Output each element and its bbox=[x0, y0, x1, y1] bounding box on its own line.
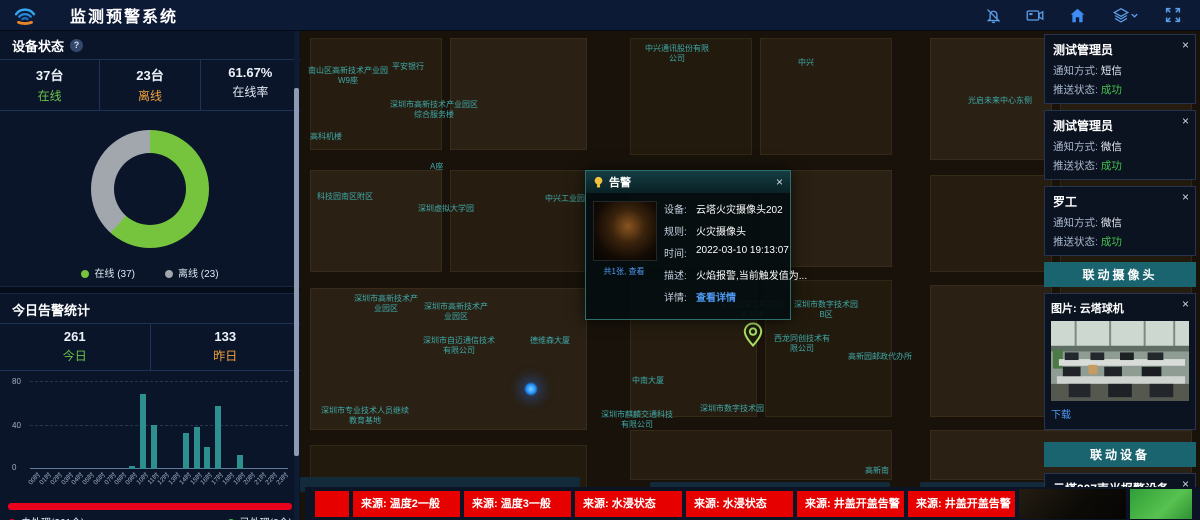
camera-snapshot-image[interactable] bbox=[1051, 321, 1189, 401]
info-icon[interactable]: ? bbox=[70, 39, 83, 52]
close-icon[interactable]: × bbox=[1182, 115, 1189, 127]
alarm-device-row: 设备:云塔火灾摄像头202 bbox=[664, 201, 807, 216]
alert-chip[interactable]: 来源: 井盖开盖告警 bbox=[797, 491, 904, 517]
bar bbox=[213, 406, 224, 469]
map-place-label: A座 bbox=[430, 162, 443, 172]
alert-chip[interactable]: 来源: 温度2一般 bbox=[353, 491, 460, 517]
bar bbox=[181, 433, 192, 469]
device-location-dot[interactable] bbox=[524, 382, 538, 396]
bar bbox=[148, 425, 159, 469]
map-place-label: 高新园邮政代办所 bbox=[848, 352, 912, 362]
processed-legend: 已处理(0个) bbox=[227, 514, 292, 520]
alert-chip[interactable]: 来源: 水浸状态 bbox=[686, 491, 793, 517]
home-icon[interactable] bbox=[1068, 6, 1086, 24]
legend-online: 在线 (37) bbox=[81, 265, 135, 280]
map-place-label: 中兴工业园 bbox=[545, 194, 585, 204]
map-place-label: 中兴 bbox=[798, 58, 814, 68]
bar bbox=[191, 427, 202, 469]
map-place-label: 深圳市麒麟交通科技有限公司 bbox=[598, 410, 676, 431]
camera-snapshot-card: × 图片: 云塔球机 bbox=[1044, 293, 1196, 430]
map-place-label: 中南大厦 bbox=[632, 376, 664, 386]
bar bbox=[138, 394, 149, 469]
alarm-popup-body: 共1张, 查看 设备:云塔火灾摄像头202 规则:火灾摄像头 时间:2022-0… bbox=[586, 193, 790, 319]
alarm-popup-title: 告警 bbox=[609, 174, 776, 190]
linked-devices-header: 联动设备 bbox=[1044, 442, 1196, 467]
donut-legend: 在线 (37) 离线 (23) bbox=[0, 263, 300, 286]
linked-cameras-header: 联动摄像头 bbox=[1044, 262, 1196, 287]
map-place-label: 西龙同创技术有限公司 bbox=[772, 334, 832, 355]
alarm-popup-header: 告警 × bbox=[586, 171, 790, 193]
notification-card: × 测试管理员 通知方式: 微信 推送状态: 成功 bbox=[1044, 110, 1196, 180]
alarm-rule-row: 规则:火灾摄像头 bbox=[664, 223, 807, 238]
alert-chip-partial[interactable] bbox=[315, 491, 349, 517]
map-place-label: 深圳市自迈通信技术有限公司 bbox=[420, 336, 498, 357]
today-alarms-table: 261 今日 133 昨日 bbox=[0, 323, 300, 371]
device-status-donut-wrap bbox=[0, 115, 300, 263]
close-icon[interactable]: × bbox=[776, 176, 783, 188]
map-place-label: 科技园南区附区 bbox=[305, 192, 385, 202]
header-actions bbox=[984, 6, 1182, 24]
map-place-label: 深圳虚拟大学园 bbox=[418, 204, 474, 214]
map-place-label: 高新南 bbox=[865, 466, 889, 476]
offline-count-cell: 23台 离线 bbox=[100, 60, 200, 110]
camera-preview-thumbnail[interactable] bbox=[1019, 489, 1126, 519]
hourly-alarm-bar-chart: 80 40 0 00时01时02时03时04时05时06时07时08时09时10… bbox=[8, 377, 292, 497]
device-status-section-title: 设备状态 ? bbox=[0, 30, 300, 59]
app-logo-icon bbox=[12, 2, 38, 28]
bar bbox=[234, 455, 245, 469]
map-place-label: 高科机楼 bbox=[310, 132, 342, 142]
legend-offline: 离线 (23) bbox=[165, 265, 219, 280]
scrollbar-thumb[interactable] bbox=[294, 88, 299, 456]
map-place-label: 深圳市数字技术园 bbox=[700, 404, 764, 414]
bar-chart-bars bbox=[30, 381, 288, 469]
bottom-alert-ticker: 来源: 温度2一般来源: 温度3一般来源: 水浸状态来源: 水浸状态来源: 井盖… bbox=[305, 487, 1200, 520]
today-alarms-section-title: 今日告警统计 bbox=[0, 294, 300, 323]
video-camera-icon[interactable] bbox=[1026, 6, 1044, 24]
bar bbox=[127, 466, 138, 469]
camera-preview-thumbnail[interactable] bbox=[1130, 489, 1192, 519]
alarm-detail-row: 详情: 查看详情 bbox=[664, 289, 807, 304]
online-count-cell: 37台 在线 bbox=[0, 60, 100, 110]
alert-chip[interactable]: 来源: 井盖开盖告警 bbox=[908, 491, 1015, 517]
left-panel-scrollbar bbox=[294, 30, 299, 520]
app-header: 监测预警系统 bbox=[0, 0, 1200, 31]
today-count-cell: 261 今日 bbox=[0, 324, 151, 370]
fullscreen-icon[interactable] bbox=[1164, 6, 1182, 24]
monitoring-dashboard: 监测预警系统 bbox=[0, 0, 1200, 520]
bottom-alerts: 来源: 温度2一般来源: 温度3一般来源: 水浸状态来源: 水浸状态来源: 井盖… bbox=[353, 491, 1015, 517]
yesterday-count-cell: 133 昨日 bbox=[151, 324, 301, 370]
left-stats-panel: 设备状态 ? 37台 在线 23台 离线 61.67% 在线率 在线 (37) bbox=[0, 30, 300, 520]
layers-icon[interactable] bbox=[1110, 6, 1140, 24]
alert-chip[interactable]: 来源: 温度3一般 bbox=[464, 491, 571, 517]
online-rate-cell: 61.67% 在线率 bbox=[201, 60, 300, 110]
map-place-label: 深圳市高新技术产业园区 bbox=[352, 294, 420, 315]
unprocessed-progress-bar bbox=[8, 503, 292, 510]
map-place-label: 南山区高新技术产业园W9座 bbox=[305, 66, 391, 87]
notification-card: × 罗工 通知方式: 微信 推送状态: 成功 bbox=[1044, 186, 1196, 256]
donut-hole bbox=[114, 153, 186, 225]
map-place-label: 中兴通讯股份有限公司 bbox=[645, 44, 709, 65]
map-place-label: 深圳市专业技术人员继续教育基地 bbox=[318, 406, 412, 427]
map-place-label: 深圳市高新技术产业园区综合服务楼 bbox=[388, 100, 480, 121]
alarm-time-row: 时间:2022-03-10 19:13:07 bbox=[664, 245, 807, 260]
close-icon[interactable]: × bbox=[1182, 298, 1189, 310]
map-place-label: 德维森大厦 bbox=[530, 336, 570, 346]
download-link[interactable]: 下载 bbox=[1051, 406, 1071, 421]
map-place-label: 平安银行 bbox=[392, 62, 424, 72]
alert-chip[interactable]: 来源: 水浸状态 bbox=[575, 491, 682, 517]
close-icon[interactable]: × bbox=[1182, 191, 1189, 203]
chevron-down-icon bbox=[1130, 11, 1139, 20]
alarm-location-pin-icon[interactable] bbox=[743, 322, 763, 353]
map-place-label: 深圳市高新技术产业园区 bbox=[422, 302, 490, 323]
notification-card: × 测试管理员 通知方式: 短信 推送状态: 成功 bbox=[1044, 34, 1196, 104]
close-icon[interactable]: × bbox=[1182, 39, 1189, 51]
device-status-table: 37台 在线 23台 离线 61.67% 在线率 bbox=[0, 59, 300, 111]
unprocessed-legend: 未处理(261个) bbox=[8, 514, 84, 520]
page-title: 监测预警系统 bbox=[70, 3, 178, 27]
alarm-popup: 告警 × 共1张, 查看 设备:云塔火灾摄像头202 规则:火灾摄像头 时间: bbox=[585, 170, 791, 320]
alarm-snapshot-image[interactable] bbox=[593, 201, 657, 261]
processing-legend: 未处理(261个) 已处理(0个) bbox=[8, 514, 292, 520]
alarm-bulb-icon bbox=[593, 176, 604, 189]
bell-off-icon[interactable] bbox=[984, 6, 1002, 24]
bar bbox=[202, 447, 213, 469]
alarm-desc-row: 描述:火焰报警,当前触发值为... bbox=[664, 267, 807, 282]
right-notification-panel: × 测试管理员 通知方式: 短信 推送状态: 成功 × 测试管理员 通知方式: … bbox=[1044, 34, 1196, 520]
bar-chart-xlabels: 00时01时02时03时04时05时06时07时08时09时10时11时12时1… bbox=[30, 471, 288, 495]
snapshot-view-link[interactable]: 共1张, 查看 bbox=[593, 266, 655, 277]
map-place-label: 光启未来中心东侧 bbox=[968, 96, 1032, 106]
view-details-link[interactable]: 查看详情 bbox=[696, 289, 736, 304]
